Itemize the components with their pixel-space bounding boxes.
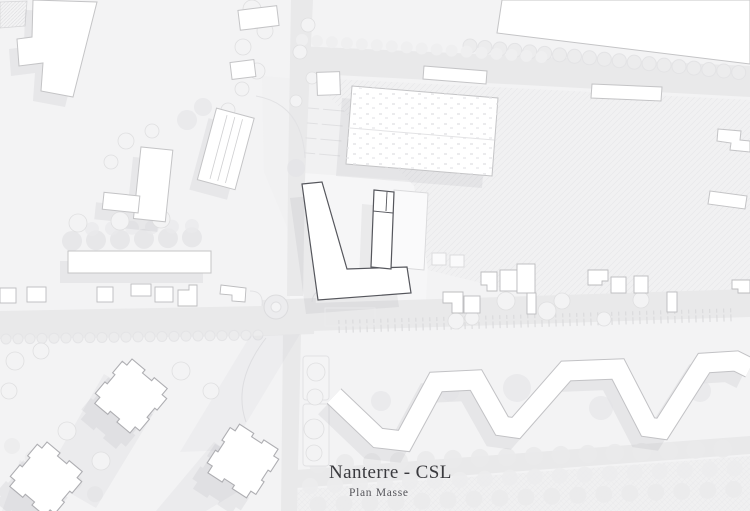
site-plan-drawing <box>0 0 750 511</box>
project-tower <box>371 190 394 269</box>
long-thin-building <box>591 84 662 101</box>
roundabout-island <box>271 302 281 312</box>
small-building <box>230 60 256 80</box>
small-square-building <box>317 72 341 96</box>
warehouse-grid-texture <box>346 86 498 176</box>
plan-subtitle: Plan Masse <box>349 487 409 499</box>
long-building <box>68 251 211 273</box>
small-building <box>238 6 279 31</box>
annex-wing <box>391 190 428 270</box>
tree-canopy-row <box>72 237 206 241</box>
plan-title: Nanterre - CSL <box>329 462 452 484</box>
site-plan-sheet: Nanterre - CSL Plan Masse <box>0 0 750 511</box>
corner-hatched-block <box>0 1 27 28</box>
